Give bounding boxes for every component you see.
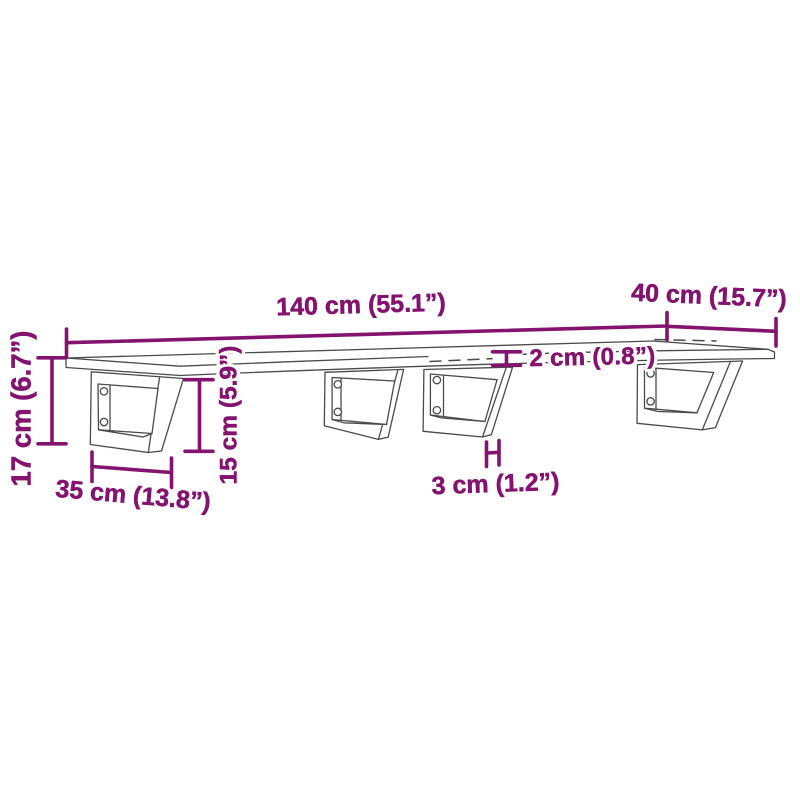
svg-text:2 cm (0.8”): 2 cm (0.8”)	[529, 342, 656, 372]
svg-text:17 cm (6.7”): 17 cm (6.7”)	[5, 331, 36, 487]
svg-text:15 cm (5.9”): 15 cm (5.9”)	[216, 346, 243, 485]
svg-text:3 cm (1.2”): 3 cm (1.2”)	[431, 468, 560, 500]
svg-text:140 cm (55.1”): 140 cm (55.1”)	[276, 289, 446, 322]
